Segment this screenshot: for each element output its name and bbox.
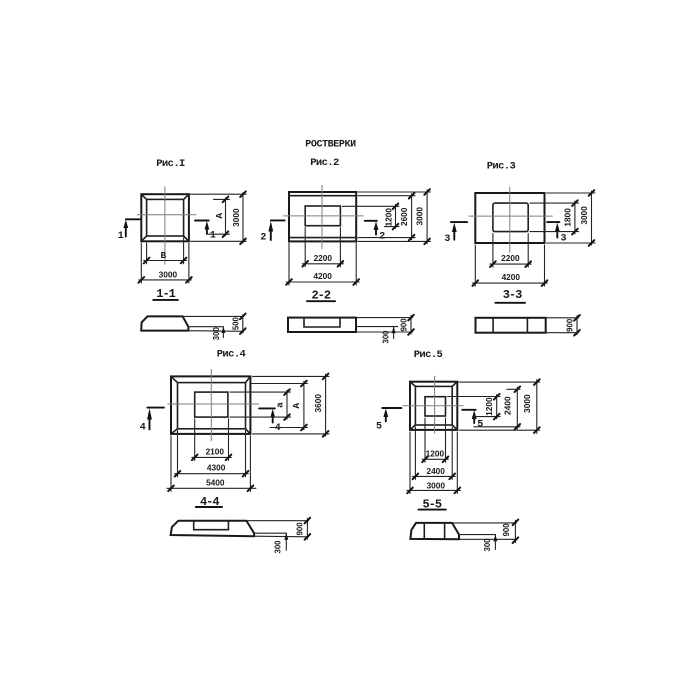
svg-text:2200: 2200 — [501, 253, 520, 263]
svg-text:3000: 3000 — [231, 208, 241, 227]
svg-text:5: 5 — [477, 419, 483, 430]
svg-text:РОСТВЕРКИ: РОСТВЕРКИ — [305, 140, 356, 151]
svg-text:Рис.I: Рис.I — [156, 158, 185, 170]
svg-text:900: 900 — [565, 318, 574, 332]
svg-text:1: 1 — [210, 231, 216, 242]
svg-text:3: 3 — [444, 234, 450, 245]
svg-text:3000: 3000 — [522, 394, 532, 413]
svg-text:4200: 4200 — [313, 271, 332, 281]
svg-text:5400: 5400 — [206, 478, 225, 488]
svg-text:2200: 2200 — [314, 253, 333, 263]
svg-text:Рис.2: Рис.2 — [310, 157, 339, 169]
svg-text:1200: 1200 — [384, 208, 394, 227]
svg-text:3000: 3000 — [159, 269, 178, 279]
svg-text:1800: 1800 — [562, 208, 572, 227]
svg-text:900: 900 — [502, 523, 511, 537]
svg-text:Рис.5: Рис.5 — [414, 349, 443, 361]
svg-text:900: 900 — [399, 318, 408, 332]
svg-text:3-3: 3-3 — [503, 288, 522, 302]
svg-text:3600: 3600 — [313, 394, 323, 413]
svg-text:3000: 3000 — [415, 207, 425, 226]
svg-text:3000: 3000 — [579, 206, 589, 225]
svg-text:4300: 4300 — [207, 463, 226, 473]
svg-text:2-2: 2-2 — [311, 288, 330, 302]
svg-text:2100: 2100 — [206, 447, 225, 457]
svg-text:500: 500 — [231, 316, 240, 330]
svg-text:300: 300 — [212, 327, 221, 341]
svg-text:4: 4 — [140, 422, 146, 433]
svg-text:А: А — [291, 403, 302, 409]
svg-text:Рис.3: Рис.3 — [487, 161, 516, 173]
svg-text:1: 1 — [118, 231, 124, 242]
svg-text:1200: 1200 — [426, 449, 445, 459]
svg-text:300: 300 — [382, 330, 391, 344]
svg-text:2400: 2400 — [426, 466, 445, 476]
svg-text:1-1: 1-1 — [156, 287, 175, 301]
svg-text:2: 2 — [260, 233, 266, 244]
svg-text:300: 300 — [483, 538, 492, 552]
svg-text:300: 300 — [273, 540, 282, 554]
svg-text:А: А — [214, 213, 225, 219]
svg-text:2600: 2600 — [399, 207, 409, 226]
svg-text:4: 4 — [275, 423, 281, 434]
svg-text:900: 900 — [296, 522, 305, 536]
svg-text:Рис.4: Рис.4 — [217, 349, 246, 361]
svg-text:4200: 4200 — [502, 272, 521, 282]
svg-text:5: 5 — [376, 421, 382, 432]
svg-text:2400: 2400 — [503, 396, 513, 415]
svg-text:В: В — [160, 250, 166, 261]
svg-text:3000: 3000 — [427, 481, 446, 491]
svg-text:1200: 1200 — [484, 397, 494, 416]
svg-text:а: а — [275, 402, 286, 408]
